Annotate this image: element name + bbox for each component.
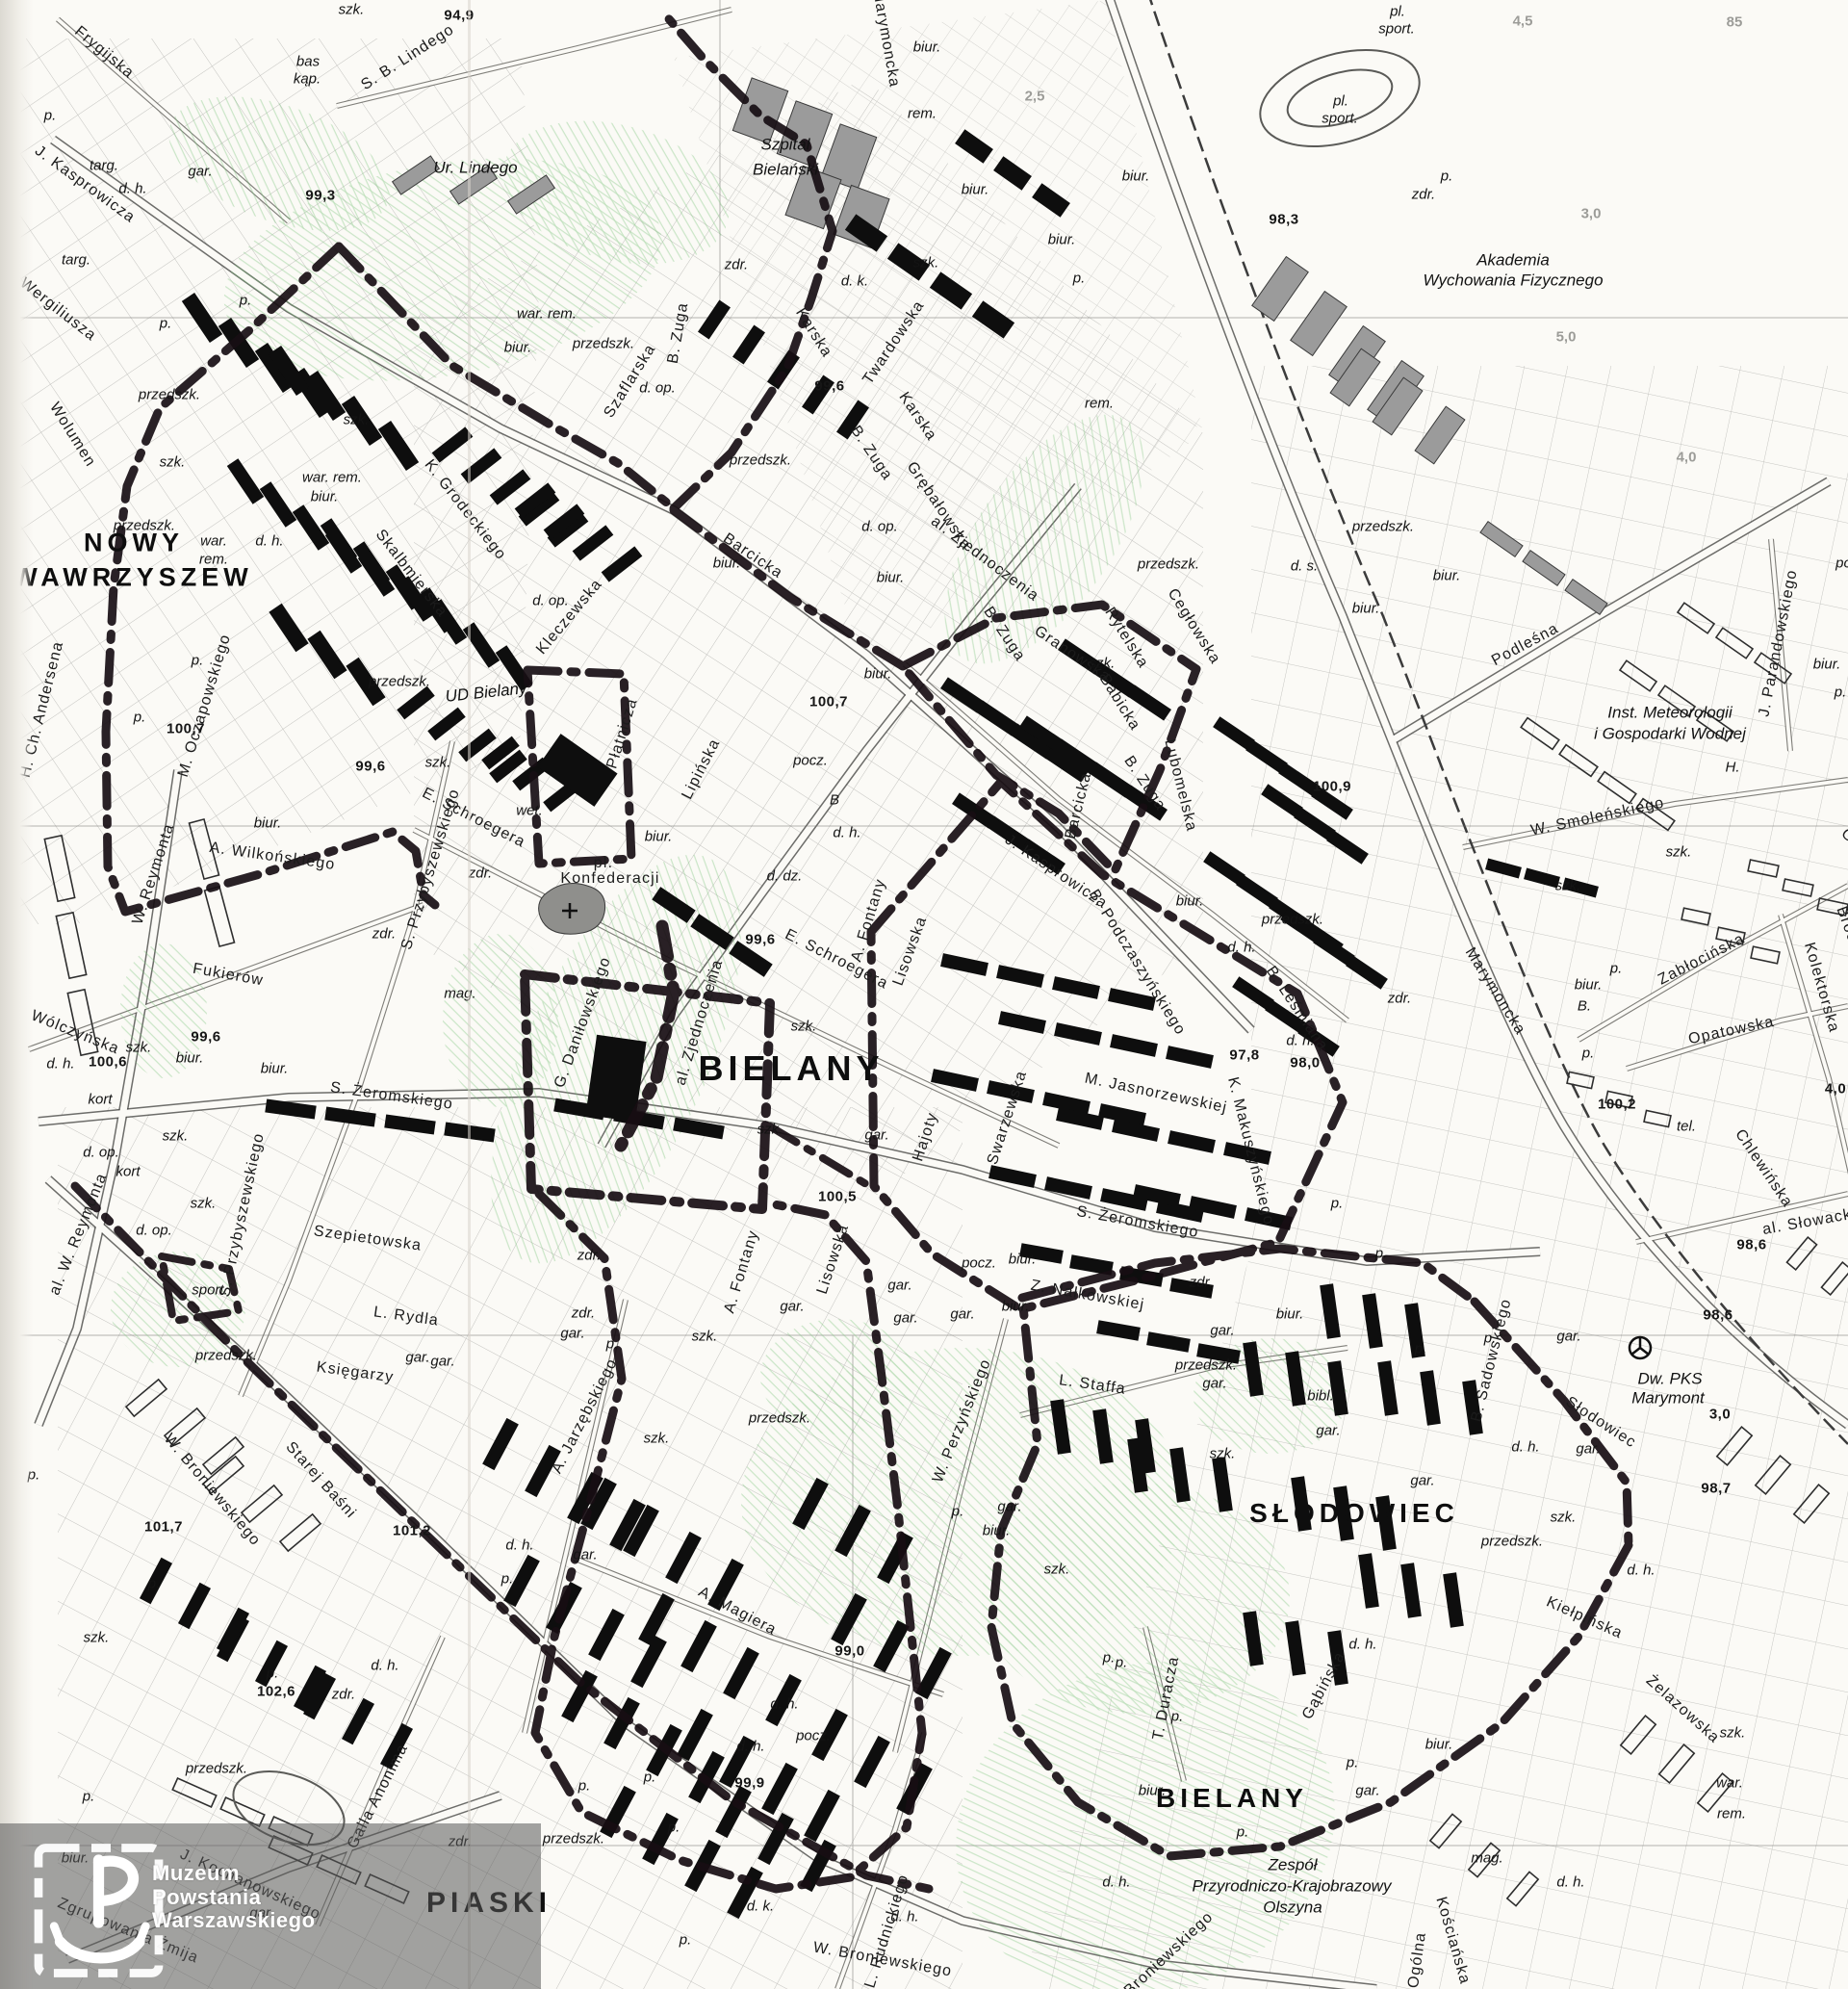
map-label: 4,5 [1513, 14, 1533, 29]
map-label: Gąbińska [1300, 1649, 1348, 1722]
map-label: Wólczyńska [29, 1008, 121, 1057]
map-label: biur. [254, 816, 282, 831]
map-label: p. [606, 1337, 619, 1352]
map-label: rem. [1085, 397, 1114, 411]
map-label: przedszk. [1138, 557, 1199, 572]
map-label: zdr. [1412, 188, 1435, 202]
map-label: Podleśna [1490, 621, 1562, 669]
map-label: szk. [791, 1020, 817, 1034]
map-label: B. Sadowskiego [1469, 1297, 1514, 1424]
map-label: d. h. [1511, 1440, 1539, 1455]
map-label: S. Żeromskiego [329, 1080, 454, 1113]
map-label: p. [83, 1790, 95, 1804]
map-label: 99,6 [191, 1030, 220, 1045]
map-label: gar. [1316, 1424, 1340, 1438]
map-label: biur. [713, 556, 741, 571]
map-label: BIELANY [1156, 1785, 1308, 1812]
map-label: gar. [893, 1311, 917, 1326]
map-label: 100,2 [1598, 1098, 1636, 1112]
map-label: gar. [573, 1548, 597, 1563]
map-label: p. [1103, 1651, 1116, 1666]
map-label: p. [1582, 1046, 1595, 1061]
map-label: A. Wilkońskiego [209, 840, 337, 873]
map-label: gar. [1202, 1377, 1226, 1391]
map-label: L. Rydla [372, 1304, 440, 1329]
map-label: SŁODOWIEC [1249, 1500, 1459, 1527]
map-label: d. op. [861, 520, 898, 534]
map-label: gar. [780, 1300, 804, 1314]
map-label: kort [115, 1165, 140, 1179]
map-label: przedszk. [114, 519, 175, 533]
map-label: M. Jasnorzewskiej [1083, 1071, 1228, 1116]
map-label: gar. [950, 1307, 974, 1322]
map-label: biur. [864, 667, 892, 682]
map-label: Szpital [760, 137, 809, 153]
map-label: p. [240, 294, 252, 308]
map-label: biur. [983, 1524, 1011, 1538]
map-label: Babicka [1096, 672, 1142, 734]
map-label: 4,0 [1677, 451, 1697, 465]
map-label: 98,6 [1736, 1238, 1766, 1253]
map-label: pomp. [1835, 556, 1848, 571]
map-label: p. [160, 317, 172, 331]
map-label: 97,8 [1229, 1048, 1259, 1063]
map-label: biur. [1425, 1738, 1453, 1752]
map-label: Chlewińska [1732, 1127, 1795, 1211]
map-label: Olszyna [1263, 1899, 1322, 1916]
map-label: p. [44, 109, 57, 123]
map-label: M. Oczapowskiego [176, 633, 234, 779]
map-label: przedszk. [1175, 1358, 1237, 1373]
map-label: biur. [504, 341, 532, 355]
map-label: szk. [1551, 1511, 1577, 1525]
map-label: p. [680, 1933, 692, 1948]
map-label: d. h. [118, 182, 146, 196]
map-label: biur. [645, 830, 673, 844]
map-label: gar. [1576, 1442, 1600, 1457]
scan-fold-line [468, 0, 471, 1989]
map-label: 100,5 [818, 1190, 857, 1204]
map-label: biur. [1002, 1300, 1030, 1314]
map-label: 85 [1727, 15, 1743, 30]
map-label: Księgarzy [316, 1359, 396, 1385]
map-label: p. [952, 1505, 964, 1519]
map-label: Zespół [1268, 1857, 1317, 1873]
map-label: 100,7 [809, 695, 848, 710]
map-label: d. h. [46, 1057, 74, 1072]
map-label: 99,3 [305, 189, 335, 203]
map-label: B. [1578, 999, 1591, 1014]
map-label: 99,9 [734, 1776, 764, 1791]
map-label: d. h. [1556, 1875, 1584, 1890]
map-label: Inst. Meteorologii [1607, 705, 1732, 721]
map-label: p. [1610, 962, 1623, 976]
map-label: d. h. [1348, 1638, 1376, 1652]
map-label: B. Zuga [666, 301, 692, 365]
map-label: p. [1415, 1342, 1427, 1356]
map-label: d. h. [833, 826, 860, 840]
map-label: szk. [425, 756, 451, 770]
watermark-line2: Powstania [152, 1886, 316, 1910]
map-label: biur. [1575, 978, 1603, 993]
map-label: szk. [84, 1631, 110, 1645]
map-label: T. Duracza [1151, 1655, 1183, 1742]
map-label: biur. [1122, 169, 1150, 184]
map-label: 5,0 [1556, 330, 1577, 345]
map-label: biur. [1813, 658, 1841, 672]
map-label: biur. [261, 1062, 289, 1076]
map-label: biur. [913, 40, 941, 55]
map-label: pl. [1390, 5, 1405, 19]
map-label: biur. [1433, 569, 1461, 583]
map-label: d. op. [639, 381, 676, 396]
map-label: sport. [1378, 22, 1415, 37]
map-label: Zabłocińska [1655, 931, 1747, 988]
map-label: przedszk. [195, 1349, 257, 1363]
map-label: gar. [997, 1500, 1021, 1514]
map-label: biur. [1276, 1307, 1304, 1322]
map-label: rem. [1717, 1807, 1746, 1821]
map-label: 99,6 [745, 933, 775, 947]
map-label: p. [578, 1779, 591, 1794]
map-label: Karska [895, 390, 938, 444]
map-label: war. rem. [302, 471, 362, 485]
map-label: L. Staffa [1058, 1373, 1127, 1398]
map-label: zdr. [1388, 992, 1411, 1006]
map-label: szk. [913, 256, 939, 271]
map-label: p. [1171, 1710, 1184, 1724]
map-label: szk. [1666, 845, 1692, 860]
map-label: tel. [1677, 1120, 1696, 1134]
map-label: 101,7 [144, 1520, 183, 1535]
map-label: B [830, 793, 839, 808]
map-label: pocz. [793, 754, 828, 768]
map-label: biur. [1139, 1784, 1167, 1798]
map-label: d. s. [1291, 559, 1318, 574]
map-label: d. h. [736, 1740, 764, 1754]
map-label: Szepietowska [313, 1224, 423, 1254]
map-label: p. [1237, 1825, 1249, 1840]
map-label: B. Zuga [980, 605, 1027, 664]
map-label: Wolumen [46, 400, 98, 471]
map-label: d. h. [1102, 1875, 1130, 1890]
map-label: Żelazowska [1643, 1673, 1722, 1746]
map-label: szk. [163, 1129, 189, 1144]
map-label: 4,0 [1825, 1082, 1846, 1097]
map-label: Swarzewska [986, 1069, 1031, 1167]
map-label: Kleczewska [534, 577, 605, 658]
map-label: S. Przybyszewskiego [218, 1131, 268, 1298]
map-label: przedszk. [749, 1411, 810, 1426]
map-label: szk. [344, 413, 370, 427]
map-label: mag. [444, 987, 475, 1001]
map-label: zdr. [725, 258, 748, 272]
map-label: biur. [962, 183, 989, 197]
map-label: 101,2 [393, 1524, 431, 1538]
map-label: pocz. [796, 1729, 831, 1744]
map-label: A. Fontany [849, 877, 888, 964]
map-label: kort [88, 1093, 112, 1107]
map-label: p. [148, 1577, 161, 1591]
map-label: zdr. [1190, 1276, 1213, 1290]
map-label: Wychowania Fizycznego [1423, 272, 1603, 289]
map-label: przedszk. [369, 675, 430, 689]
map-label: targ. [62, 253, 90, 268]
map-label: gar. [188, 165, 212, 179]
map-label: biur. [311, 490, 339, 504]
map-label: E. Schroegera [783, 927, 890, 993]
map-label: Przyrodniczo-Krajobrazowy [1193, 1878, 1392, 1895]
map-label: W. Broniewskiego [1103, 1909, 1217, 1989]
map-label: Dw. PKS [1637, 1371, 1702, 1387]
map-label: H. [1726, 761, 1740, 775]
map-label: przedszk. [186, 1762, 247, 1776]
map-label: 102,6 [257, 1685, 295, 1699]
map-label: gar. [1410, 1474, 1434, 1488]
map-label: p. [192, 654, 204, 668]
map-label: szk. [644, 1432, 670, 1446]
map-label: Karska [792, 306, 834, 361]
map-label: 98,7 [1701, 1482, 1731, 1496]
map-labels: FrygijskaS. B. LindegoJ. KasprowiczaWerg… [0, 0, 1848, 1989]
map-label: biur. [1176, 894, 1204, 909]
map-label: szk. [1044, 1563, 1070, 1577]
map-label: 2,5 [1025, 90, 1045, 104]
map-label: 99,6 [355, 760, 385, 774]
map-label: gar. [560, 1327, 584, 1341]
map-label: pl. [594, 856, 614, 871]
map-label: war. rem. [517, 307, 577, 322]
map-label: UD Bielany [445, 680, 527, 705]
map-label: d. h. [890, 1910, 918, 1924]
map-label: p. [267, 1666, 279, 1681]
map-label: Marymoncka [1462, 945, 1527, 1038]
map-label: kąp. [294, 72, 321, 87]
map-label: zdr. [572, 1306, 595, 1321]
map-label: d. h. [1627, 1563, 1655, 1578]
map-label: Skalbmierska [372, 528, 450, 621]
map-label: A. Jarzębskiego [550, 1356, 621, 1477]
map-label: Twardowska [860, 298, 928, 388]
map-label: biur. [176, 1051, 204, 1066]
map-label: 3,0 [1709, 1408, 1731, 1422]
map-label: wet. [516, 804, 543, 818]
map-label: d. dz. [767, 869, 803, 884]
map-label: 99,0 [834, 1644, 864, 1659]
map-label: szk. [692, 1330, 718, 1344]
map-label: Cegłowska [1165, 586, 1223, 667]
map-label: d. h. [371, 1659, 398, 1673]
map-label: BIELANY [698, 1051, 884, 1086]
map-canvas: FrygijskaS. B. LindegoJ. KasprowiczaWerg… [0, 0, 1848, 1989]
map-label: al. Słowackiego [1761, 1201, 1848, 1238]
map-label: przedszk. [139, 388, 200, 402]
map-label: przedszk. [573, 337, 634, 351]
map-label: 98,0 [1290, 1056, 1320, 1071]
map-label: S. B. Lindego [359, 22, 457, 93]
map-label: J. Parandowskiego [1757, 568, 1800, 718]
map-label: Marymoncka [869, 0, 902, 89]
map-label: Gdańska [1837, 826, 1848, 886]
map-label: Kolektorska [1801, 941, 1841, 1034]
map-label: S. Żeromskiego [1075, 1204, 1200, 1241]
map-label: przedszk. [730, 453, 791, 468]
map-label: biur. [1048, 233, 1076, 247]
map-label: zdr. [577, 1249, 601, 1263]
map-label: Akademia [1476, 252, 1550, 269]
map-label: gar. [1556, 1330, 1580, 1344]
map-label: gar. [864, 1128, 888, 1143]
map-label: Bielański [753, 162, 818, 178]
map-label: d. k. [841, 274, 868, 289]
map-label: Konfederacji [560, 871, 659, 887]
map-label: mag. [1471, 1851, 1502, 1866]
map-label: przedszk. [1352, 520, 1414, 534]
map-label: p. [644, 1770, 656, 1785]
map-label: Ur. Lindego [433, 160, 517, 176]
map-label: pocz. [962, 1256, 996, 1271]
map-label: K. Grodeckiego [422, 457, 509, 563]
map-label: p. [1484, 1331, 1497, 1346]
map-label: Ogólna [1406, 1931, 1429, 1989]
map-label: 3,0 [1581, 207, 1602, 221]
map-label: zdr. [469, 866, 492, 881]
map-label: Brochowska [1834, 905, 1848, 1000]
map-label: 98,6 [1703, 1308, 1732, 1323]
map-label: d. h. [1227, 941, 1255, 955]
map-label: W. Smoleńskiego [1529, 795, 1666, 839]
map-label: B. Zuga [1120, 754, 1168, 814]
map-label: przedszk. [543, 1832, 604, 1847]
map-label: gar. [1210, 1324, 1234, 1338]
map-label: 100,6 [89, 1055, 127, 1070]
map-label: 100,9 [1313, 780, 1351, 794]
map-label: p. [668, 1821, 680, 1835]
map-label: Kiełpińska [1544, 1594, 1625, 1641]
map-label: p. [1441, 169, 1453, 184]
museum-watermark: Muzeum Powstania Warszawskiego [0, 1823, 541, 1989]
map-label: war. [1716, 1776, 1743, 1791]
map-label: Opatowska [1687, 1015, 1776, 1048]
map-label: bas [296, 55, 320, 69]
map-label: Lipińska [680, 736, 723, 802]
map-label: szk. [757, 1123, 783, 1137]
map-label: p. [1375, 1247, 1388, 1261]
map-label: Lisowska [891, 915, 931, 988]
watermark-text: Muzeum Powstania Warszawskiego [152, 1862, 316, 1933]
map-label: p. [501, 1572, 514, 1587]
map-label: war. [200, 534, 227, 549]
map-label: gar. [1355, 1784, 1379, 1798]
map-label: p. [1073, 271, 1086, 286]
map-label: bibl. [1307, 1389, 1334, 1404]
map-label: p. [1331, 1197, 1344, 1211]
map-label: Płatnicza [604, 696, 640, 770]
map-label: d. h. [1286, 1034, 1314, 1048]
map-label: szk. [126, 1041, 152, 1055]
map-label: d. op. [532, 594, 569, 608]
map-label: Lubomelska [1161, 737, 1198, 833]
map-label: gar. [405, 1351, 429, 1365]
map-label: Słodowiec [1563, 1394, 1639, 1451]
map-label: B. Zuga [847, 424, 894, 483]
map-label: G. Daniłowskiego [552, 955, 614, 1091]
map-label: Frygijska [71, 24, 137, 82]
map-label: d. op. [83, 1146, 119, 1160]
map-label: d. k. [747, 1899, 774, 1914]
map-label: gar. [430, 1355, 454, 1369]
map-label: al. W. Reymonta [47, 1171, 111, 1298]
map-label: p. [1116, 1656, 1128, 1670]
map-label: Marymont [1631, 1390, 1705, 1407]
map-label: rem. [199, 553, 228, 567]
map-label: A. Fontany [722, 1228, 761, 1315]
watermark-line3: Warszawskiego [152, 1909, 316, 1933]
map-label: p. [1347, 1756, 1359, 1770]
map-label: 99,6 [814, 379, 844, 394]
map-label: NOWY [84, 530, 184, 556]
map-label: Lisowska [815, 1223, 853, 1297]
map-label: B. Podczaszyńskiego [1086, 888, 1188, 1039]
map-label: biur. [877, 571, 905, 585]
map-label: K. Makuszyńskiego [1224, 1075, 1276, 1227]
map-label: A. Magiera [696, 1585, 779, 1639]
map-label: d. h. [770, 1697, 798, 1712]
map-label: p. [134, 710, 146, 725]
map-label: WAWRZYSZEW [13, 565, 252, 591]
map-label: 100,7 [167, 722, 205, 736]
map-label: zdr. [372, 927, 396, 942]
map-label: szk. [160, 455, 186, 470]
map-label: rem. [908, 107, 937, 121]
map-label: biur. [1009, 1253, 1037, 1267]
map-label: Kościańska [1432, 1896, 1472, 1987]
map-label: szk. [1210, 1447, 1236, 1461]
map-label: Starej Baśni [282, 1439, 358, 1522]
map-label: przedszk. [1481, 1535, 1543, 1549]
map-label: i Gospodarki Wodnej [1594, 726, 1746, 742]
map-label: pl. [1333, 94, 1348, 109]
map-label: 98,3 [1269, 213, 1298, 227]
map-label: zdr. [332, 1688, 355, 1702]
map-label: p. [1835, 685, 1847, 700]
map-label: sport. [1322, 112, 1358, 126]
map-label: gar. [887, 1279, 911, 1293]
map-label: targ. [90, 159, 118, 173]
map-label: szk. [191, 1197, 217, 1211]
map-label: Fukierów [192, 962, 265, 990]
map-label: d. h. [255, 534, 283, 549]
watermark-line1: Muzeum [152, 1862, 316, 1886]
map-label: W. Perzyńskiego [931, 1356, 994, 1485]
scan-edge-shadow [0, 0, 33, 1989]
map-label: biur. [1352, 602, 1380, 616]
map-label: szk. [1555, 879, 1581, 893]
map-label: szk. [1720, 1726, 1746, 1741]
map-label: Grębałowska [904, 459, 974, 553]
map-label: d. op. [136, 1224, 172, 1238]
map-label: Hajoty [911, 1111, 940, 1164]
map-label: Z. Nałkowskiej [1030, 1279, 1146, 1314]
map-label: d. h. [505, 1538, 533, 1553]
map-label: Barcicka [1064, 771, 1095, 841]
map-label: szk. [339, 3, 365, 17]
map-label: W. Reymonta [131, 822, 178, 927]
map-label: sport. [192, 1283, 228, 1298]
map-label: szk. [1090, 657, 1116, 671]
map-label: przedszk. [1262, 913, 1323, 927]
